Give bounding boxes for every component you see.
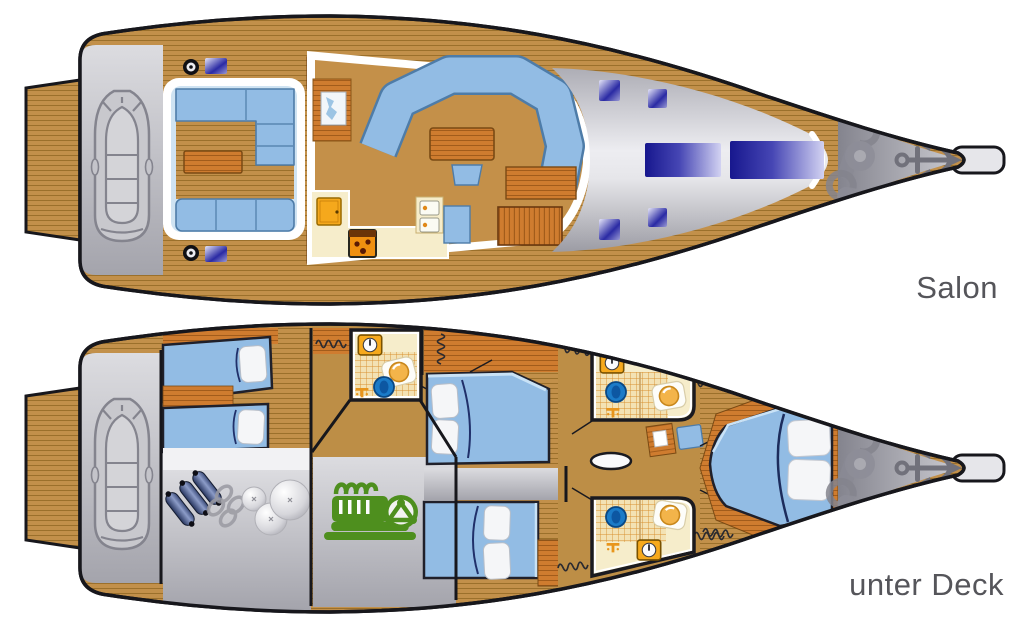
toilet-icon [606,507,626,527]
swim-platform [26,388,80,548]
cockpit [163,58,305,262]
toilet-icon [606,382,626,402]
storage-lazarette [161,467,311,610]
pillow [483,542,511,579]
salon-stool [452,165,482,185]
hatch-icon [205,246,227,262]
label-salon: Salon [916,270,998,306]
deck-hatch-icon [599,80,620,101]
bathroom-port [592,339,694,420]
toilet-icon [374,377,394,397]
hatch-icon [205,58,227,74]
pillow [483,506,510,541]
seat [677,424,704,449]
swim-platform [26,80,80,240]
nav-station [313,79,351,141]
pillow [431,383,459,419]
bathroom-aft [351,330,421,400]
winch-icon [183,245,199,261]
deck-hatch-icon [648,89,667,108]
pillow [237,409,265,444]
aft-cabin [163,328,278,452]
galley-appliances [416,197,443,233]
winch-icon [183,59,199,75]
sink-icon [651,380,687,411]
salon-table [430,128,494,160]
cockpit-bench-bottom [176,199,294,231]
chart-icon [321,92,346,125]
water-heater-icon [637,540,660,560]
bathroom-starboard [592,498,694,576]
pillow [787,459,830,500]
chart-cabinet [646,423,676,456]
salon-deck [26,16,1004,304]
cockpit-table [184,151,242,173]
label-unter-deck: unter Deck [849,567,1004,603]
yacht-deck-plan: Salon unter Deck [0,0,1024,622]
dinghy-icon [92,399,153,549]
basin-oval [591,453,631,469]
owner-cabin [700,398,838,538]
skylight-hatch [645,143,721,177]
deck-hatch-icon [648,208,667,227]
shelf [163,448,311,470]
galley-seat [444,206,470,243]
double-berth [424,502,538,578]
cabin-port [424,326,560,464]
deck-hatch-icon [599,219,620,240]
companionway-steps [498,207,562,245]
dinghy-icon [92,91,153,241]
pillow [239,345,267,383]
water-heater-icon [358,335,381,355]
deck-plan-drawing [0,0,1024,622]
salon-room [307,51,591,265]
skylight-hatch [730,141,824,179]
cabinet [424,326,560,372]
floor-grate [506,167,576,199]
passage [424,468,566,500]
stove-icon [349,230,376,257]
sink-icon [652,499,688,530]
